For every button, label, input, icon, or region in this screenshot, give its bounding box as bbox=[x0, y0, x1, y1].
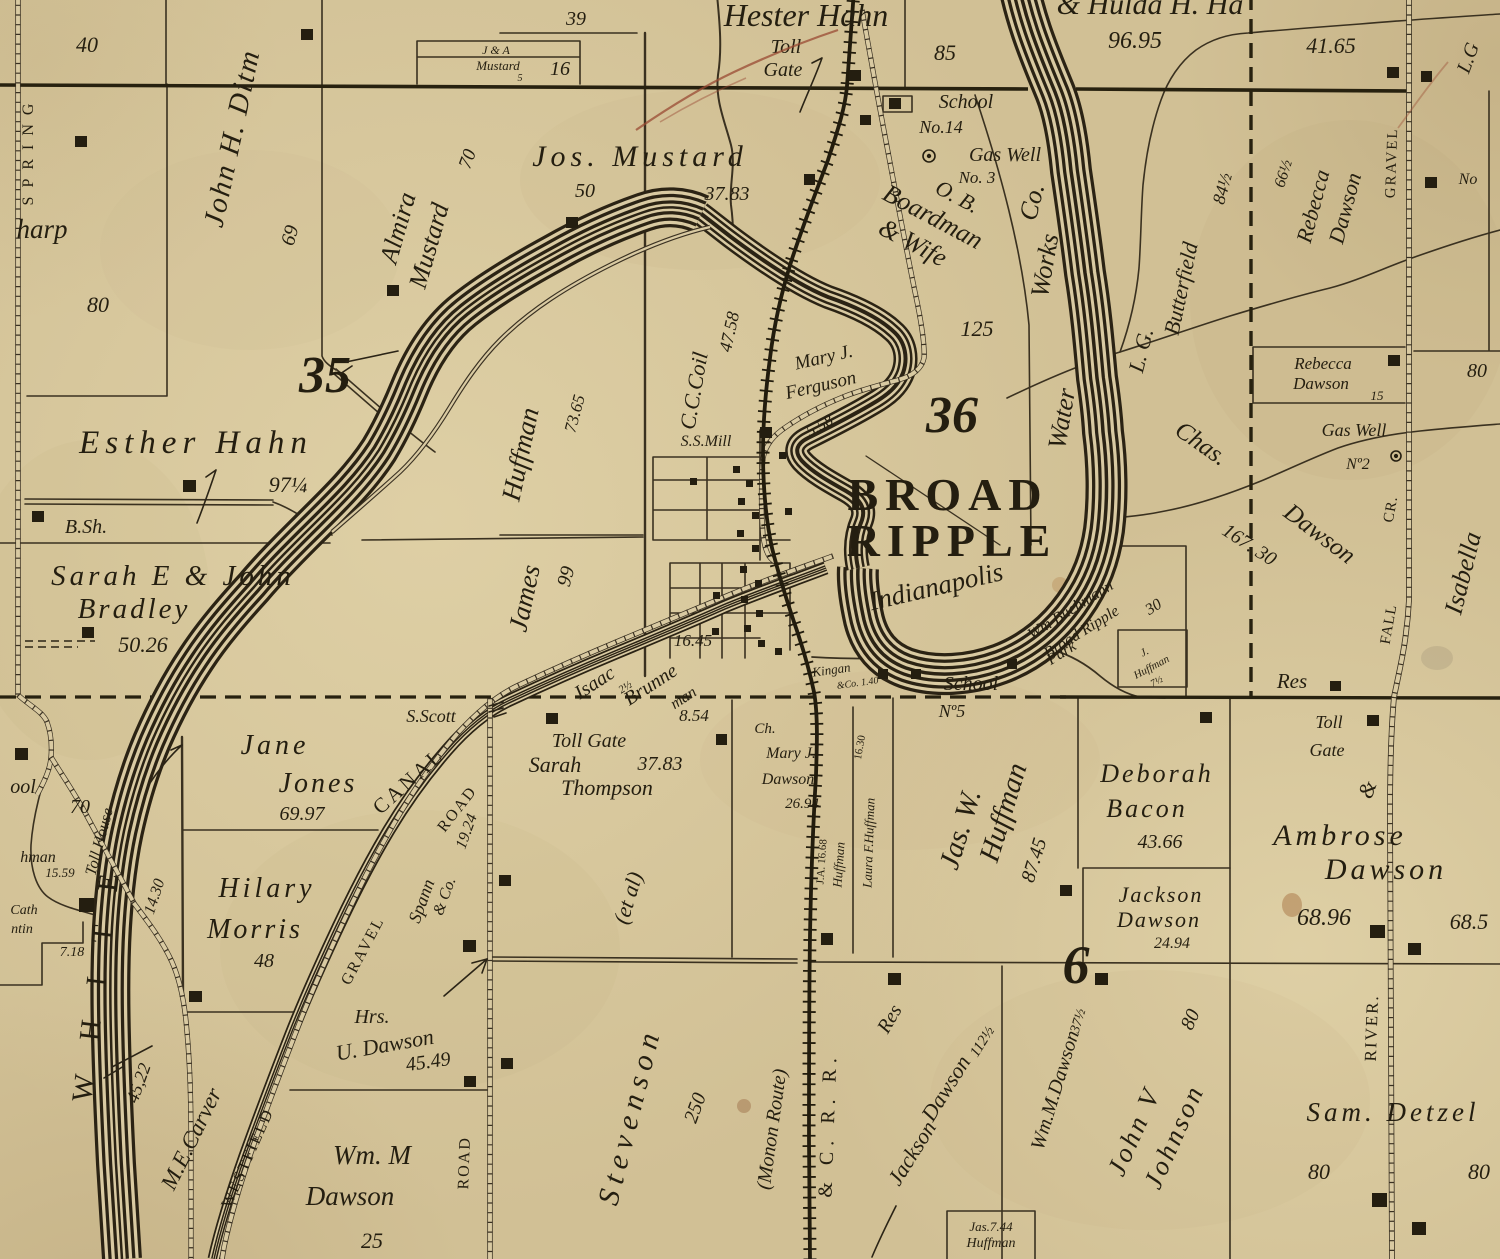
svg-text:Dawson: Dawson bbox=[1324, 853, 1447, 886]
svg-text:RIPPLE: RIPPLE bbox=[847, 515, 1058, 566]
svg-text:harp: harp bbox=[16, 214, 67, 244]
svg-text:Nº2: Nº2 bbox=[1345, 456, 1370, 473]
svg-text:No.14: No.14 bbox=[918, 117, 963, 137]
svg-text:hman: hman bbox=[20, 849, 56, 866]
svg-text:Jos. Mustard: Jos. Mustard bbox=[532, 140, 748, 173]
svg-text:Gate: Gate bbox=[764, 59, 803, 81]
svg-text:No: No bbox=[1458, 171, 1478, 188]
svg-text:Thompson: Thompson bbox=[561, 775, 653, 800]
svg-text:43.66: 43.66 bbox=[1138, 831, 1183, 853]
svg-text:69.97: 69.97 bbox=[280, 803, 326, 825]
svg-text:80: 80 bbox=[87, 292, 109, 317]
svg-text:97¼: 97¼ bbox=[269, 472, 308, 497]
svg-text:Toll: Toll bbox=[1315, 712, 1342, 732]
svg-text:68.96: 68.96 bbox=[1297, 905, 1351, 931]
svg-text:BROAD: BROAD bbox=[847, 469, 1048, 520]
svg-text:48: 48 bbox=[254, 950, 274, 972]
svg-text:50: 50 bbox=[575, 180, 595, 202]
svg-text:85: 85 bbox=[934, 40, 956, 65]
svg-text:Bradley: Bradley bbox=[78, 593, 191, 625]
svg-text:15.59: 15.59 bbox=[45, 865, 75, 880]
svg-text:School: School bbox=[939, 91, 994, 113]
svg-text:24.94: 24.94 bbox=[1154, 935, 1190, 952]
svg-text:40: 40 bbox=[76, 32, 98, 57]
svg-text:ool: ool bbox=[10, 776, 36, 798]
svg-text:Ch.: Ch. bbox=[754, 721, 775, 737]
svg-text:Dawson: Dawson bbox=[305, 1181, 395, 1211]
svg-text:J & A: J & A bbox=[482, 43, 510, 57]
svg-text:B.Sh.: B.Sh. bbox=[65, 516, 107, 538]
svg-text:80: 80 bbox=[1467, 360, 1487, 382]
svg-text:Huffman: Huffman bbox=[966, 1236, 1016, 1251]
svg-text:8.54: 8.54 bbox=[679, 706, 709, 725]
svg-text:Hilary: Hilary bbox=[217, 873, 315, 904]
svg-text:16: 16 bbox=[550, 58, 570, 80]
svg-text:6: 6 bbox=[1063, 935, 1090, 995]
svg-text:Dawson: Dawson bbox=[1116, 907, 1201, 932]
svg-text:37.83: 37.83 bbox=[637, 753, 683, 775]
svg-text:Hester Hahn: Hester Hahn bbox=[723, 0, 888, 33]
svg-text:50.26: 50.26 bbox=[118, 632, 168, 657]
svg-text:Gas Well: Gas Well bbox=[1322, 420, 1387, 440]
svg-text:Rebecca: Rebecca bbox=[1293, 354, 1352, 373]
svg-text:Sarah E & John: Sarah E & John bbox=[51, 560, 295, 592]
svg-text:39: 39 bbox=[565, 8, 586, 30]
svg-text:7.18: 7.18 bbox=[60, 945, 85, 960]
svg-text:Mary J.: Mary J. bbox=[765, 745, 816, 762]
svg-text:GRAVEL: GRAVEL bbox=[1383, 127, 1401, 198]
svg-text:Morris: Morris bbox=[206, 914, 303, 945]
svg-text:68.5: 68.5 bbox=[1450, 909, 1489, 934]
svg-text:70: 70 bbox=[70, 796, 90, 818]
svg-text:& Hulda H. Ha: & Hulda H. Ha bbox=[1057, 0, 1244, 21]
svg-text:35: 35 bbox=[298, 347, 351, 404]
svg-text:36: 36 bbox=[925, 387, 978, 444]
svg-text:RIVER.: RIVER. bbox=[1361, 994, 1382, 1062]
svg-text:41.65: 41.65 bbox=[1306, 33, 1356, 58]
svg-text:Bacon: Bacon bbox=[1106, 794, 1187, 823]
svg-text:Hrs.: Hrs. bbox=[353, 1006, 389, 1028]
svg-text:Esther Hahn: Esther Hahn bbox=[78, 425, 313, 461]
svg-text:Cath: Cath bbox=[10, 903, 37, 918]
svg-text:Res: Res bbox=[1276, 669, 1307, 693]
svg-text:ROAD: ROAD bbox=[455, 1136, 474, 1190]
svg-text:16.45: 16.45 bbox=[674, 631, 712, 650]
svg-text:S.S.Mill: S.S.Mill bbox=[681, 433, 732, 450]
svg-text:School: School bbox=[944, 673, 999, 695]
svg-text:Laura F.Huffman: Laura F.Huffman bbox=[859, 798, 877, 890]
svg-text:Jackson: Jackson bbox=[1119, 882, 1204, 907]
svg-text:Sam. Detzel: Sam. Detzel bbox=[1307, 1097, 1480, 1127]
svg-text:25: 25 bbox=[361, 1228, 383, 1253]
svg-text:80: 80 bbox=[1308, 1159, 1330, 1184]
svg-text:Wm. M: Wm. M bbox=[333, 1140, 412, 1170]
svg-text:Mustard: Mustard bbox=[475, 58, 520, 73]
svg-text:No. 3: No. 3 bbox=[958, 168, 996, 187]
svg-text:15: 15 bbox=[1371, 388, 1385, 403]
svg-text:Jane: Jane bbox=[241, 730, 310, 761]
svg-text:SPRING: SPRING bbox=[20, 95, 37, 206]
svg-text:5: 5 bbox=[518, 73, 523, 84]
svg-text:Dawson: Dawson bbox=[761, 771, 814, 788]
svg-text:96.95: 96.95 bbox=[1108, 28, 1162, 54]
svg-text:125: 125 bbox=[961, 316, 994, 341]
svg-text:26.94: 26.94 bbox=[785, 796, 819, 812]
svg-text:Nº5: Nº5 bbox=[938, 701, 966, 721]
svg-text:Gas Well: Gas Well bbox=[969, 144, 1041, 166]
svg-text:Ambrose: Ambrose bbox=[1271, 819, 1407, 852]
svg-text:Deborah: Deborah bbox=[1099, 759, 1213, 788]
svg-text:80: 80 bbox=[1468, 1159, 1490, 1184]
svg-text:Sarah: Sarah bbox=[529, 752, 582, 777]
svg-text:Jas.7.44: Jas.7.44 bbox=[969, 1219, 1013, 1234]
svg-text:ntin: ntin bbox=[11, 922, 33, 937]
svg-text:Gate: Gate bbox=[1310, 740, 1345, 760]
svg-text:Jones: Jones bbox=[279, 768, 358, 799]
svg-text:S.Scott: S.Scott bbox=[406, 706, 456, 726]
svg-text:Dawson: Dawson bbox=[1292, 374, 1349, 393]
svg-text:Toll Gate: Toll Gate bbox=[552, 730, 626, 752]
svg-text:37.83: 37.83 bbox=[704, 183, 750, 205]
